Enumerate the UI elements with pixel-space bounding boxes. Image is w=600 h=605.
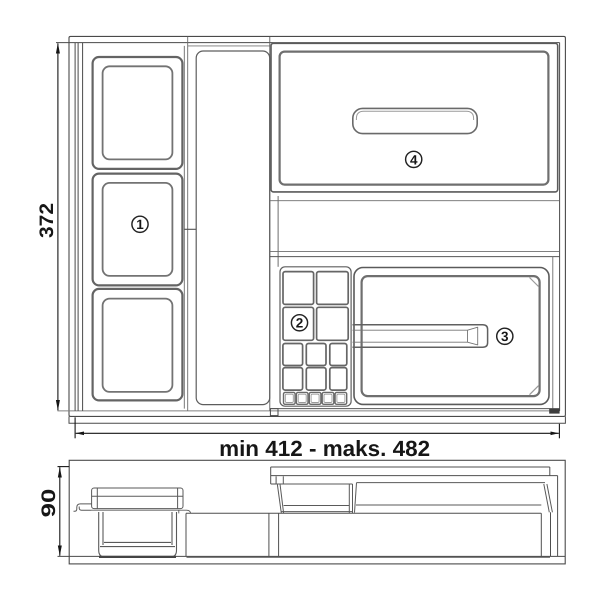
- svg-text:min 412 - maks. 482: min 412 - maks. 482: [219, 436, 430, 461]
- svg-text:372: 372: [36, 203, 58, 238]
- svg-text:1: 1: [136, 217, 144, 232]
- svg-text:4: 4: [410, 152, 418, 167]
- svg-text:2: 2: [296, 316, 304, 331]
- svg-text:90: 90: [38, 489, 60, 518]
- svg-text:3: 3: [501, 329, 509, 344]
